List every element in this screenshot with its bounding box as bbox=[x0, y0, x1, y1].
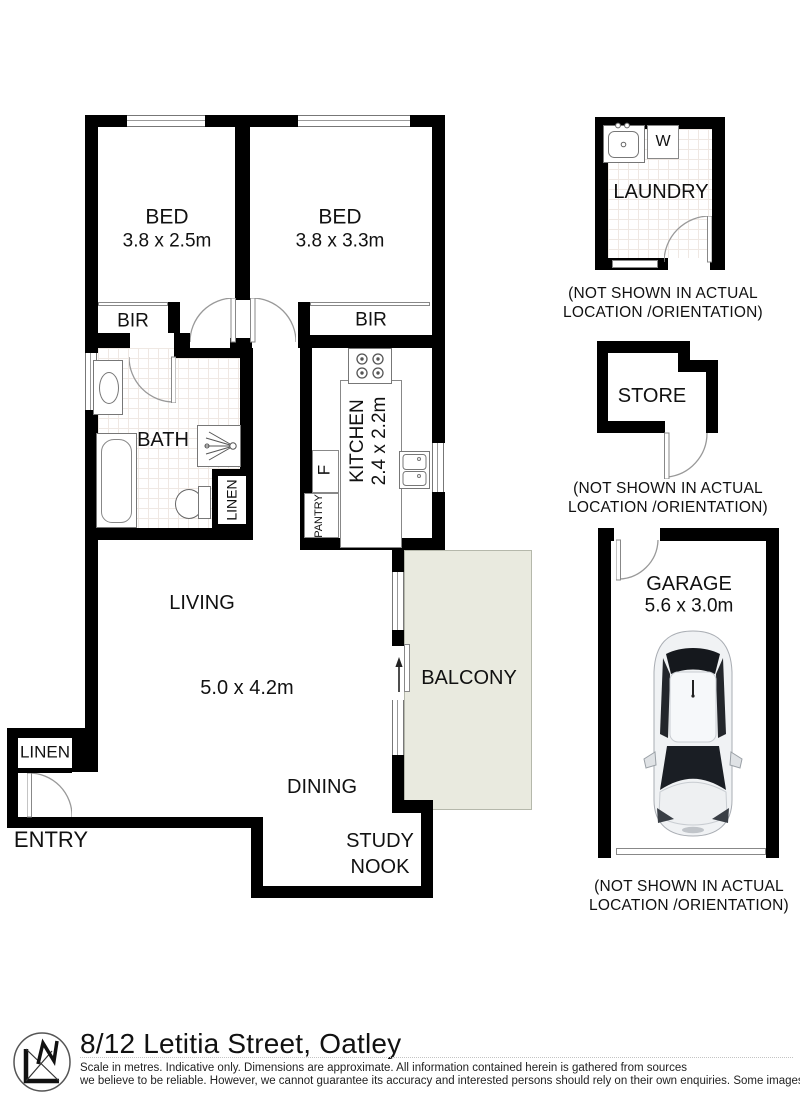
wall bbox=[72, 728, 98, 772]
garage-note: (NOT SHOWN IN ACTUAL LOCATION /ORIENTATI… bbox=[583, 877, 795, 915]
kitchen-name: KITCHEN bbox=[347, 397, 369, 486]
wall bbox=[174, 333, 190, 348]
door-entry bbox=[27, 773, 72, 819]
wall bbox=[597, 341, 608, 433]
stove-cooktop bbox=[348, 348, 392, 384]
bathtub-inner bbox=[101, 439, 132, 523]
window bbox=[392, 572, 404, 630]
wall bbox=[174, 348, 240, 358]
toilet-tank bbox=[198, 486, 211, 519]
entry-label: ENTRY bbox=[14, 828, 88, 852]
laundry-tub bbox=[603, 122, 645, 163]
wall bbox=[712, 117, 725, 270]
bir2-label: BIR bbox=[355, 311, 387, 332]
vanity-basin bbox=[99, 372, 119, 404]
wall bbox=[298, 335, 445, 348]
kitchen-label: KITCHEN 2.4 x 2.2m bbox=[347, 397, 391, 486]
bed1-label: BED bbox=[145, 205, 188, 228]
wall bbox=[598, 528, 611, 858]
door-bath bbox=[129, 355, 176, 403]
wall bbox=[392, 630, 404, 646]
fridge-label: F bbox=[316, 465, 335, 475]
door-store bbox=[663, 431, 709, 479]
wall bbox=[432, 115, 445, 443]
wall bbox=[168, 302, 180, 333]
door-laundry bbox=[664, 216, 712, 264]
wall bbox=[597, 421, 665, 433]
shower bbox=[197, 425, 241, 467]
dining-label: DINING bbox=[287, 776, 357, 798]
wall bbox=[660, 528, 779, 541]
wall bbox=[235, 115, 250, 300]
study-nook-label: STUDY NOOK bbox=[334, 828, 426, 880]
bed2-label: BED bbox=[318, 205, 361, 228]
floorplan-page: BED 3.8 x 2.5m BED 3.8 x 3.3m BIR BIR BA… bbox=[0, 0, 800, 1105]
window bbox=[612, 260, 658, 268]
wardrobe-front-line bbox=[310, 302, 430, 306]
garage-label: GARAGE bbox=[646, 573, 732, 595]
door-bed1 bbox=[190, 298, 236, 344]
wall bbox=[392, 800, 433, 813]
living-dims: 5.0 x 4.2m bbox=[200, 677, 293, 699]
store-label: STORE bbox=[618, 385, 687, 407]
laundry-note: (NOT SHOWN IN ACTUAL LOCATION /ORIENTATI… bbox=[557, 284, 769, 322]
door-bed2 bbox=[250, 298, 296, 344]
wall bbox=[392, 550, 404, 572]
laundry-label: LAUNDRY bbox=[613, 181, 708, 203]
wall bbox=[710, 258, 725, 270]
wall bbox=[597, 341, 690, 353]
bath-linen-label: LINEN bbox=[224, 479, 239, 520]
window bbox=[127, 115, 205, 127]
balcony-label: BALCONY bbox=[421, 667, 517, 689]
north-logo-icon bbox=[12, 1031, 72, 1093]
bath-label: BATH bbox=[137, 429, 189, 451]
disclaimer-line-2: we believe to be reliable. However, we c… bbox=[80, 1075, 800, 1087]
wardrobe-front-line bbox=[98, 302, 168, 306]
window bbox=[298, 115, 410, 127]
address-title: 8/12 Letitia Street, Oatley bbox=[80, 1028, 401, 1060]
window bbox=[392, 700, 404, 755]
garage-dims: 5.6 x 3.0m bbox=[645, 597, 734, 618]
garage-roller-door bbox=[616, 848, 766, 855]
wall bbox=[766, 528, 779, 858]
store-note: (NOT SHOWN IN ACTUAL LOCATION /ORIENTATI… bbox=[562, 479, 774, 517]
bed1-dims: 3.8 x 2.5m bbox=[123, 232, 212, 253]
wall bbox=[205, 115, 298, 127]
entry-direction-arrow-icon bbox=[392, 656, 406, 694]
bed2-dims: 3.8 x 3.3m bbox=[296, 232, 385, 253]
wall bbox=[85, 333, 130, 348]
wall bbox=[85, 115, 98, 353]
window bbox=[432, 443, 444, 492]
kitchen-sink bbox=[399, 451, 430, 489]
car-top-view bbox=[643, 628, 743, 840]
wall bbox=[706, 360, 718, 433]
washer-label: W bbox=[655, 133, 670, 151]
wall bbox=[251, 886, 433, 898]
wall bbox=[7, 728, 18, 827]
divider bbox=[80, 1057, 793, 1058]
kitchen-dims: 2.4 x 2.2m bbox=[369, 397, 391, 486]
pantry-label: PANTRY bbox=[313, 494, 325, 538]
entry-linen-label: LINEN bbox=[20, 744, 70, 763]
bir1-label: BIR bbox=[117, 312, 149, 333]
living-label: LIVING bbox=[169, 592, 235, 614]
disclaimer-line-1: Scale in metres. Indicative only. Dimens… bbox=[80, 1062, 687, 1074]
